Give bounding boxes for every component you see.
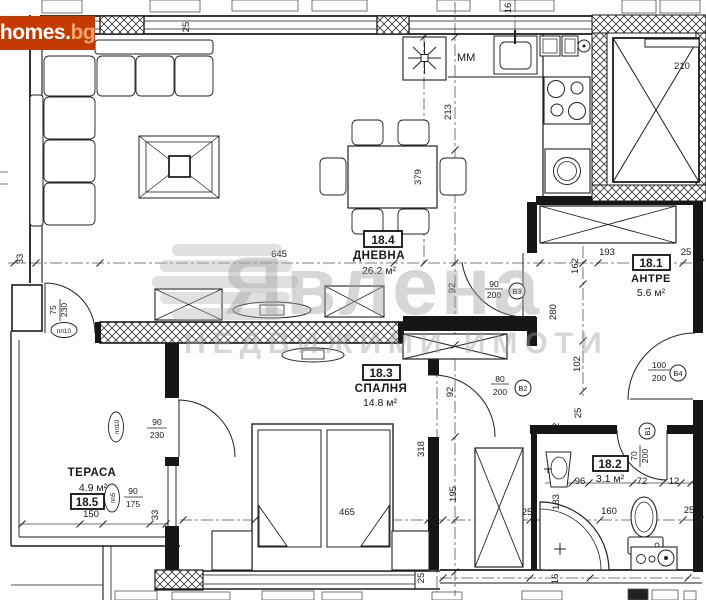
door-height: 200 [640, 449, 650, 463]
watermark-logo-bar [172, 244, 282, 256]
dimension-label: 379 [413, 169, 424, 185]
floorplan-drawing: 18.4 ДНЕВНА 26.2 м² 18.1 АНТРЕ 5.6 м² 18… [0, 0, 706, 600]
washing-machine-bath [631, 547, 677, 570]
dimension-label: 12 [551, 423, 562, 434]
dimension-label: 318 [416, 441, 427, 457]
dimension-label: 160 [601, 506, 617, 517]
door-tag-pp5: 90 175 пп5 [105, 484, 144, 512]
dimension-label: 92 [447, 283, 458, 294]
door-code: пп10 [114, 419, 121, 434]
ac-snowflake-icon [408, 42, 441, 74]
door-width: 90 [489, 279, 499, 289]
door-width: 75 [48, 305, 58, 315]
room-label-bedroom: 18.3 СПАЛНЯ 14.8 м² [355, 365, 408, 409]
dining-set [320, 120, 466, 234]
room-area: 14.8 м² [363, 397, 398, 409]
dimension-label: 280 [548, 304, 559, 320]
door-code: В4 [673, 369, 682, 378]
dimension-label: 213 [443, 104, 454, 120]
door-width: 70 [629, 451, 639, 461]
door-tag-pp10-living: 75 230 пп10 [48, 299, 77, 338]
dimension-label: 193 [599, 247, 615, 258]
door-tag-b4: 100 200 В4 [648, 360, 686, 383]
watermark-logo-bar [152, 276, 298, 288]
dimension-label: 25 [573, 408, 584, 419]
room-id: 18.4 [371, 233, 395, 247]
toilet [628, 497, 663, 554]
door-tag-b2: 80 200 В2 [491, 374, 531, 397]
door-tag-pp10-bedroom: 90 230 пп10 [109, 412, 168, 442]
dimension-label: 33 [15, 254, 26, 265]
dimension-label: 33 [150, 510, 161, 521]
shower [540, 502, 609, 570]
door-tag-b3: 90 200 В3 [485, 279, 525, 300]
room-label-living: 18.4 ДНЕВНА 26.2 м² [353, 231, 405, 277]
coffee-table [139, 136, 219, 198]
door-tag-b1: 70 200 В1 [629, 423, 655, 467]
bathroom-sink [544, 452, 571, 487]
dimension-label: 16 [550, 574, 561, 585]
dimension-label: 96 [575, 476, 586, 487]
dimension-label: 25 [684, 505, 695, 516]
room-id: 18.2 [598, 457, 622, 471]
dimension-label: 210 [674, 61, 690, 72]
room-id: 18.3 [369, 366, 393, 380]
dimension-label: 150 [83, 509, 99, 520]
door-width: 80 [495, 374, 505, 384]
logo-text-main: homes [0, 21, 65, 45]
dimension-label: 162 [570, 258, 581, 274]
dimension-label: 25 [522, 507, 533, 518]
room-area: 5.6 м² [637, 287, 666, 299]
elevator-shaft [592, 15, 706, 201]
dimension-label: 16 [503, 3, 514, 14]
room-name: ДНЕВНА [353, 250, 405, 262]
door-code: пп5 [110, 492, 117, 503]
dimension-label: 12 [669, 476, 680, 487]
room-area: 4.9 м² [79, 482, 108, 494]
kitchen-sink [494, 30, 537, 74]
door-width: 100 [652, 360, 666, 370]
floorplan-image: 18.4 ДНЕВНА 26.2 м² 18.1 АНТРЕ 5.6 м² 18… [0, 0, 706, 600]
stove [544, 77, 590, 124]
room-area: 26.2 м² [362, 265, 397, 277]
bed [212, 424, 429, 571]
door-width: 90 [128, 486, 138, 496]
watermark-logo-bar [172, 308, 284, 320]
dimension-label: 102 [572, 356, 583, 372]
door-code: В1 [643, 426, 652, 435]
door-width: 90 [152, 417, 162, 427]
dimension-label: 195 [448, 486, 459, 502]
door-code: В3 [512, 287, 521, 296]
logo-text-tld: bg [70, 21, 95, 45]
room-label-bath: 18.2 3.1 м² [593, 456, 628, 485]
room-name: ТЕРАСА [68, 467, 117, 479]
room-area: 3.1 м² [596, 473, 625, 485]
watermark-logo-bar [160, 292, 290, 304]
room-id: 18.5 [76, 497, 99, 509]
room-name: СПАЛНЯ [355, 383, 408, 395]
kitchen-appliance-label: MM [457, 52, 475, 64]
room-label-hall: 18.1 АНТРЕ 5.6 м² [631, 255, 671, 299]
door-height: 200 [652, 373, 666, 383]
dimension-label: 25 [181, 22, 192, 33]
door-height: 175 [126, 499, 140, 509]
dimension-label: 92 [445, 387, 456, 398]
dimension-label: 72 [637, 476, 648, 487]
door-height: 200 [493, 387, 507, 397]
washing-machine-kitchen [545, 149, 590, 193]
dimension-label: 183 [551, 494, 562, 510]
door-code: пп10 [57, 328, 72, 335]
dimension-label: 25 [681, 247, 692, 258]
dimension-label: 465 [339, 507, 355, 518]
door-height: 230 [59, 303, 69, 317]
room-name: АНТРЕ [631, 273, 671, 285]
dimension-label: 25 [416, 573, 427, 584]
room-id: 18.1 [639, 256, 663, 270]
watermark-logo-bar [160, 260, 292, 272]
door-height: 200 [487, 290, 501, 300]
door-code: В2 [518, 384, 527, 393]
homes-bg-logo: homes.bg [0, 16, 95, 50]
door-height: 230 [150, 430, 164, 440]
